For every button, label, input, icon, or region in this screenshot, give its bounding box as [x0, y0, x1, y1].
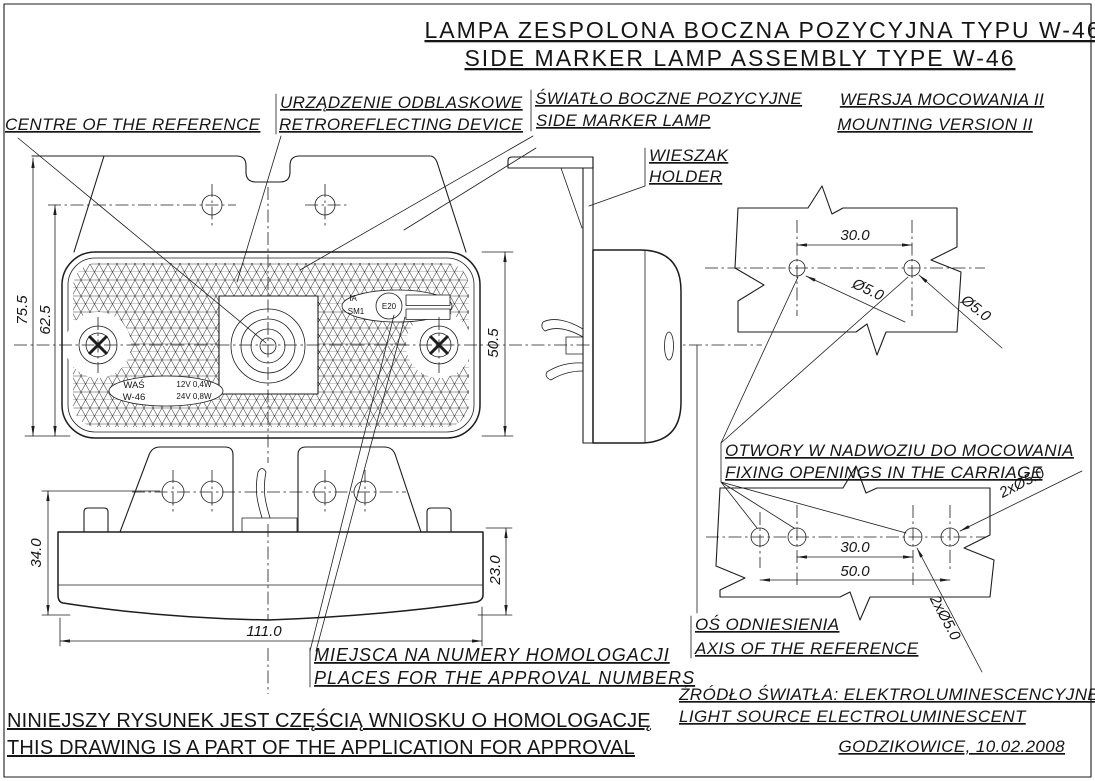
label-side-marker-en: SIDE MARKER LAMP — [536, 111, 711, 130]
label-holder-en: HOLDER — [649, 167, 722, 186]
side-view — [508, 157, 697, 613]
mounting-bracket — [32, 156, 466, 252]
technical-drawing-page: WAŚ W-46 12V 0,4W 24V 0,8W IA SM1 E20 — [0, 0, 1095, 781]
category-2-text: SM1 — [348, 307, 365, 316]
label-centre-reference: CENTRE OF THE REFERENCE — [5, 115, 261, 134]
category-1-text: IA — [349, 294, 357, 303]
label-approval-numbers-pl: MIEJSCA NA NUMERY HOMOLOGACJI — [314, 645, 670, 665]
dim-2x-dia-2: 2xØ5.0 — [926, 592, 964, 644]
cable-grommet — [242, 518, 297, 532]
e-mark-text: E20 — [382, 302, 397, 311]
dim-hole-dia-1: Ø5.0 — [849, 275, 887, 305]
dim-34-0: 34.0 — [28, 538, 45, 568]
label-fixing-openings-en: FIXING OPENINGS IN THE CARRIAGE — [725, 463, 1043, 482]
approval-number-box-2 — [406, 309, 450, 320]
label-place-date: GODZIKOWICE, 10.02.2008 — [838, 737, 1065, 756]
mounting-hole-detail-top: 30.0 Ø5.0 Ø5.0 — [705, 186, 1002, 355]
dim-hole-dia-2: Ø5.0 — [957, 291, 994, 325]
holder-gusset — [561, 168, 582, 228]
title-pl: LAMPA ZESPOLONA BOCZNA POZYCYJNA TYPU W-… — [424, 17, 1095, 43]
lamp-bottom-outline — [58, 532, 483, 620]
power-12v-text: 12V 0,4W — [176, 380, 212, 389]
dim-62-5: 62.5 — [37, 305, 54, 335]
label-axis-reference-pl: OŚ ODNIESIENIA — [695, 615, 839, 634]
label-holder-pl: WIESZAK — [649, 146, 729, 165]
dim-75-5: 75.5 — [14, 295, 31, 325]
bottom-dimensions: 34.0 23.0 111.0 — [28, 491, 512, 646]
label-fixing-openings-pl: OTWORY W NADWOZIU DO MOCOWANIA — [725, 441, 1074, 460]
rating-label: WAŚ W-46 12V 0,4W 24V 0,8W — [109, 376, 223, 406]
wires — [542, 320, 583, 380]
dim-bottom-50-0: 50.0 — [840, 563, 870, 580]
footer-pl: NINIEJSZY RYSUNEK JEST CZĘŚCIĄ WNIOSKU O… — [7, 708, 651, 732]
holder-vertical-plate — [583, 157, 593, 443]
bottom-holes — [132, 470, 406, 515]
model-text: W-46 — [123, 392, 146, 403]
dim-50-5: 50.5 — [485, 328, 502, 358]
approval-mark: IA SM1 E20 — [342, 290, 452, 322]
label-light-source-pl: ŹRÓDŁO ŚWIATŁA: ELEKTROLUMINESCENCYJNE — [678, 685, 1095, 704]
label-retroreflector-pl: URZĄDZENIE ODBLASKOWE — [280, 93, 523, 112]
label-mounting-version-pl: WERSJA MOCOWANIA II — [840, 90, 1044, 109]
dim-23-0: 23.0 — [487, 555, 504, 586]
cable — [256, 469, 270, 519]
power-24v-text: 24V 0,8W — [176, 392, 212, 401]
dim-top-30-0: 30.0 — [840, 227, 870, 244]
tab-left — [84, 508, 108, 532]
label-axis-reference-en: AXIS OF THE REFERENCE — [694, 639, 919, 658]
tab-right — [427, 508, 451, 532]
approval-number-box-1 — [406, 295, 450, 306]
label-approval-numbers-en: PLACES FOR THE APPROVAL NUMBERS — [314, 668, 695, 688]
dim-bottom-30-0: 30.0 — [840, 539, 870, 556]
dim-111-0: 111.0 — [246, 623, 282, 640]
bottom-bracket-right — [298, 447, 421, 532]
bottom-bracket-left — [120, 447, 233, 532]
holder-top-plate — [508, 157, 593, 168]
lamp-side-outline — [593, 250, 681, 443]
footer-en: THIS DRAWING IS A PART OF THE APPLICATIO… — [7, 737, 635, 759]
title-en: SIDE MARKER LAMP ASSEMBLY TYPE W-46 — [464, 45, 1015, 71]
brand-text: WAŚ — [123, 379, 144, 391]
label-mounting-version-en: MOUNTING VERSION II — [837, 115, 1033, 134]
label-light-source-en: LIGHT SOURCE ELECTROLUMINESCENT — [679, 707, 1027, 726]
drawing-canvas: WAŚ W-46 12V 0,4W 24V 0,8W IA SM1 E20 — [0, 0, 1095, 781]
side-grommet — [566, 337, 583, 354]
label-side-marker-pl: ŚWIATŁO BOCZNE POZYCYJNE — [535, 89, 802, 108]
label-retroreflector-en: RETROREFLECTING DEVICE — [279, 115, 523, 134]
